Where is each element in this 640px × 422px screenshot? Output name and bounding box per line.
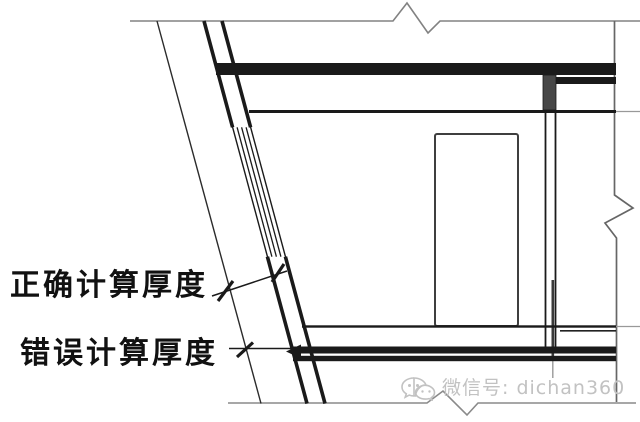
floor-slab [293,325,640,361]
detail-drawing-canvas: 正确计算厚度 错误计算厚度 微信号: dichan360 [0,0,640,422]
slope-layer-hatching [237,127,281,256]
floor-finish-line [302,325,616,327]
ceiling-slab-band [216,63,616,75]
door-opening [435,134,518,326]
wrong-thickness-label: 错误计算厚度 [20,338,218,370]
interior-wall [546,110,556,378]
ceiling-slab-band-right [556,77,616,84]
watermark: 微信号: dichan360 [398,375,625,401]
ceiling-finish-line [249,110,616,113]
dimension-annotations [212,264,301,359]
floor-slab-band-bottom [293,356,616,361]
floor-slab-band-top [293,347,616,354]
correct-thickness-label: 正确计算厚度 [10,270,208,302]
ceiling-slab [216,63,640,113]
watermark-text: 微信号: dichan360 [442,377,625,399]
slope-room-edge-thick-lower [285,257,325,404]
beam-section [543,75,556,110]
wechat-icon [398,375,438,401]
